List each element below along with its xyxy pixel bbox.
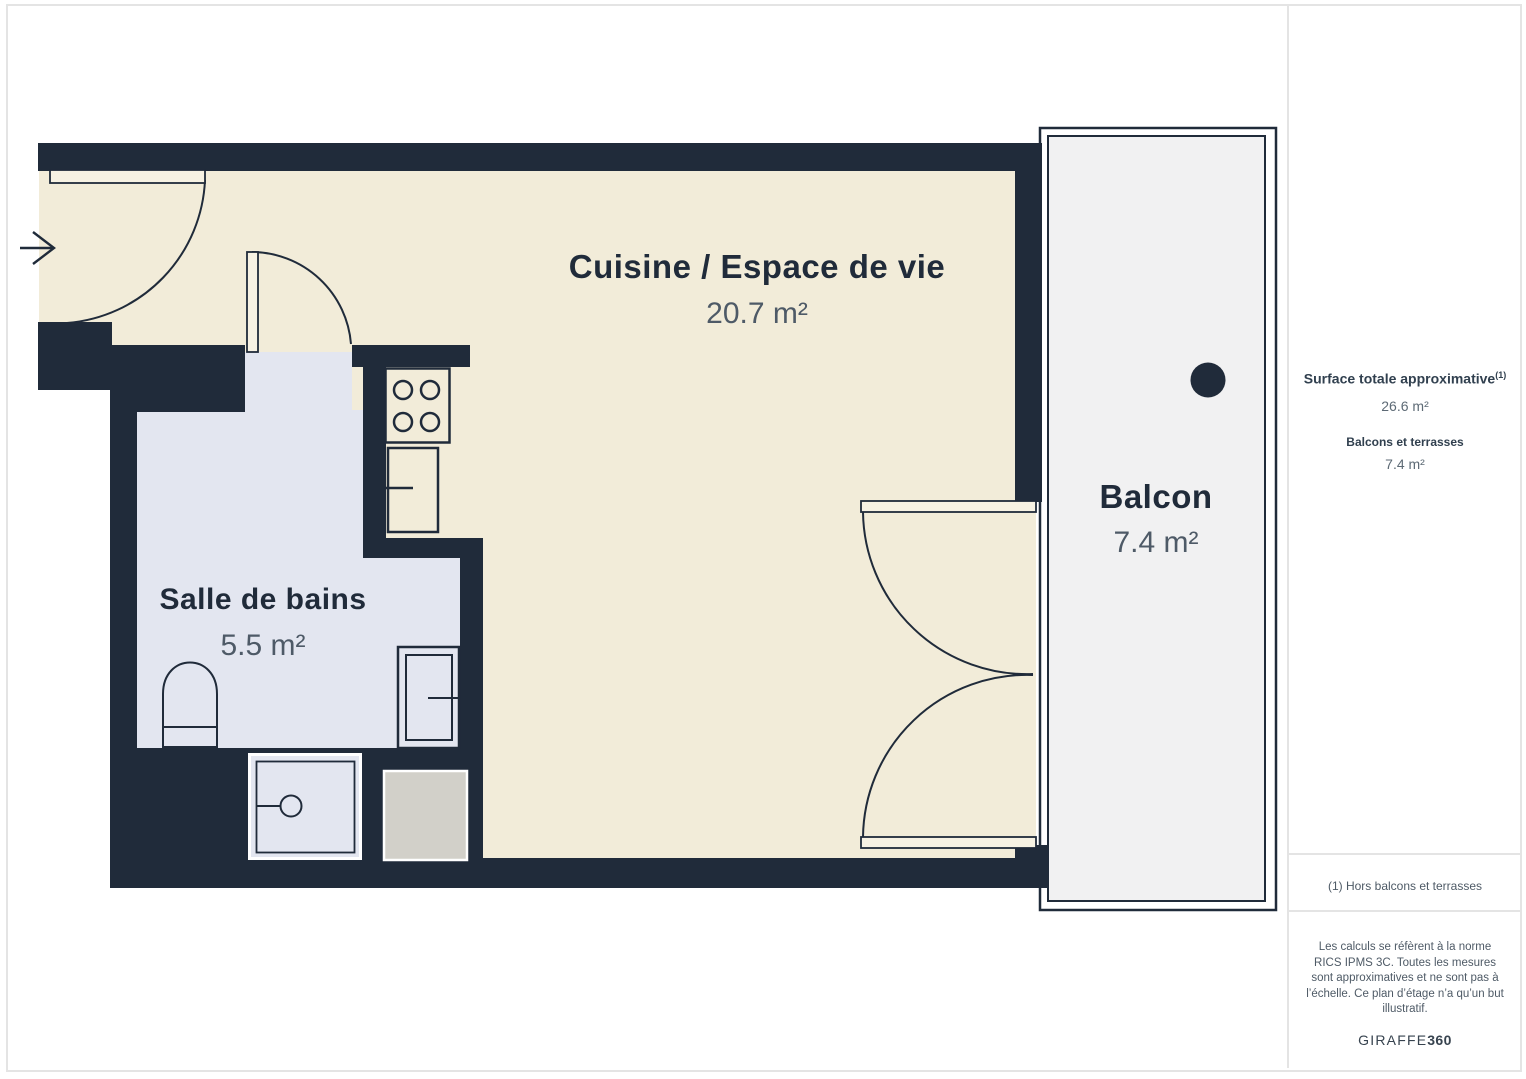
disclaimer: Les calculs se réfèrent à la norme RICS … — [1305, 940, 1505, 1018]
giraffe360-logo: GIRAFFE360 — [1289, 1032, 1521, 1048]
total-area-value: 26.6 m² — [1289, 398, 1521, 414]
balcony-area-value: 7.4 m² — [1289, 456, 1521, 472]
footnote: (1) Hors balcons et terrasses — [1289, 879, 1521, 893]
total-area-label-text: Surface totale approximative — [1304, 371, 1495, 387]
room-label-balcon: Balcon — [1099, 478, 1212, 516]
stove — [386, 369, 450, 443]
page-mask — [0, 390, 110, 950]
sidebar-divider — [1289, 910, 1521, 912]
camera-point-icon — [1191, 363, 1226, 398]
balcony-area-label: Balcons et terrasses — [1289, 435, 1521, 449]
logo-suffix: 360 — [1427, 1032, 1452, 1048]
balcony-structure — [1040, 128, 1276, 910]
room-label-salle-de-bains: Salle de bains — [159, 583, 366, 617]
logo-text: GIRAFFE — [1358, 1032, 1427, 1048]
room-label-cuisine: Cuisine / Espace de vie — [569, 248, 946, 286]
summary-sidebar: Surface totale approximative(1) 26.6 m² … — [1287, 4, 1521, 1068]
floorplan-drawing — [0, 0, 1285, 1079]
room-area-cuisine: 20.7 m² — [706, 297, 808, 331]
sidebar-divider — [1289, 853, 1521, 855]
total-area-label: Surface totale approximative(1) — [1289, 370, 1521, 387]
shower — [250, 755, 361, 859]
room-area-salle-de-bains: 5.5 m² — [220, 629, 305, 663]
toilet — [163, 663, 217, 748]
room-area-balcon: 7.4 m² — [1113, 526, 1198, 560]
washbasin — [398, 647, 459, 748]
floorplan-page: Cuisine / Espace de vie 20.7 m² Salle de… — [0, 0, 1526, 1079]
total-area-footnote-marker: (1) — [1495, 370, 1506, 380]
kitchen-sink — [386, 448, 438, 532]
appliance-box — [384, 771, 467, 860]
